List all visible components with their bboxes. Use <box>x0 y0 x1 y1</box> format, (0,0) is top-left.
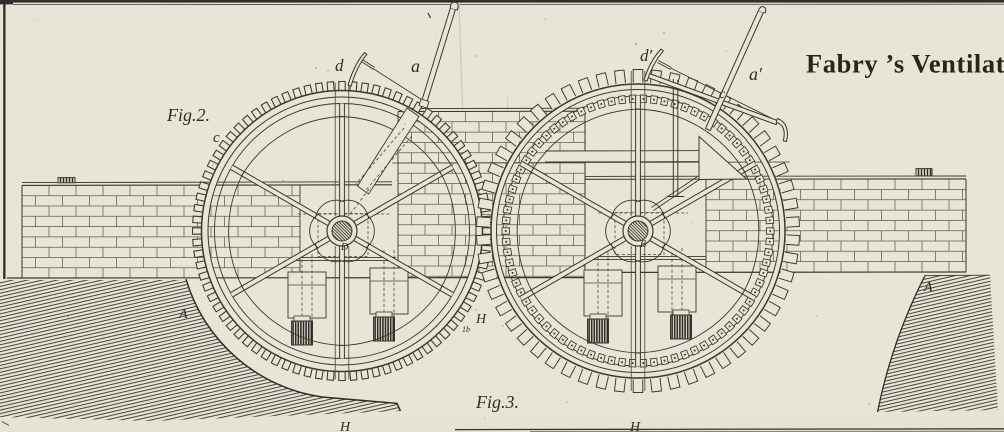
svg-text:H: H <box>475 312 487 327</box>
svg-text:c: c <box>719 87 726 102</box>
svg-text:D: D <box>340 242 349 253</box>
svg-text:d: d <box>335 56 344 75</box>
svg-text:Fig.2.: Fig.2. <box>166 105 210 125</box>
svg-text:B: B <box>640 239 646 250</box>
svg-text:Fabry ’s Ventilator: Fabry ’s Ventilator <box>806 49 1004 79</box>
svg-text:A: A <box>923 280 933 295</box>
svg-text:Fig.3.: Fig.3. <box>475 392 519 412</box>
svg-text:H: H <box>339 420 351 432</box>
svg-text:c: c <box>213 130 220 146</box>
svg-text:d′: d′ <box>640 46 653 65</box>
svg-text:A: A <box>178 307 188 322</box>
svg-text:a: a <box>411 56 420 76</box>
svg-text:a′: a′ <box>749 64 763 84</box>
svg-text:1b: 1b <box>462 325 470 334</box>
svg-text:H: H <box>629 420 641 432</box>
